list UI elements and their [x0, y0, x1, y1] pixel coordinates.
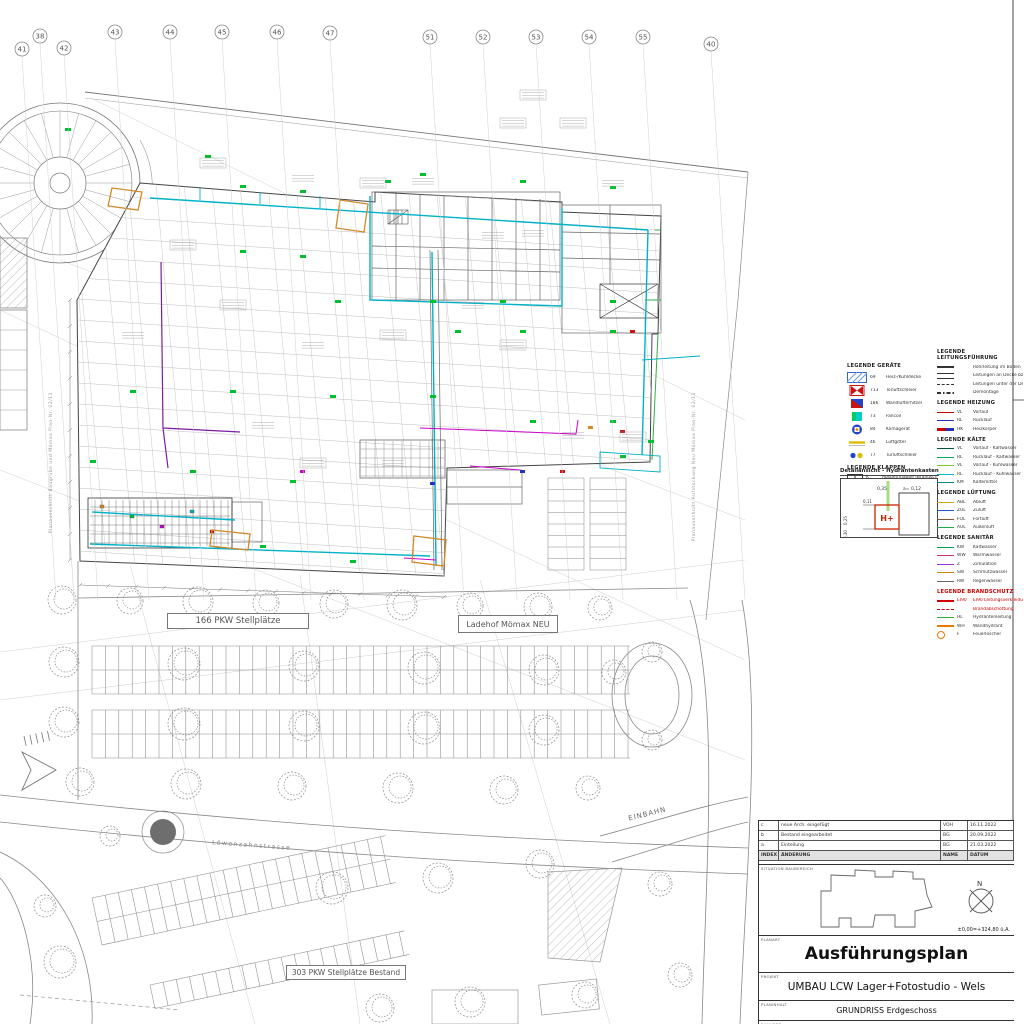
- legend-item-label: Feuerlöscher: [973, 632, 1001, 637]
- legend-item: 46Luftgitter: [847, 436, 937, 449]
- legend-item-label: Leitungen an Decke bzw. frei verlegt: [973, 373, 1023, 378]
- line-swatch-icon: [937, 420, 954, 421]
- legend-item-label: Rücklauf - Kühlwasser: [973, 472, 1021, 477]
- line-swatch-icon: [937, 609, 954, 610]
- grid-bubble: 54: [582, 30, 596, 44]
- legend-item-label: Luftgitter: [886, 440, 906, 445]
- svg-text:40: 40: [707, 40, 716, 48]
- legend-item-code: FOL: [957, 517, 973, 522]
- legend-item-label: Torluftschleier: [886, 388, 917, 393]
- line-swatch-icon: [937, 617, 954, 618]
- plan-content: GRUNDRISS Erdgeschoss: [759, 1001, 1014, 1020]
- legend-item-label: Türluftschleier: [886, 453, 917, 458]
- legend-item-code: 73: [870, 414, 886, 419]
- plan-sheet: 4138424344454647515253545540 166 PKW Ste…: [0, 0, 1024, 1024]
- line-swatch-icon: [937, 366, 954, 368]
- legend-item-code: ABL: [957, 500, 973, 505]
- legend-item: ZULZuluft: [937, 507, 1023, 516]
- line-swatch-icon: [937, 502, 954, 503]
- label-planausschnitt-left: Planausschnitt Baugrube und Mömax Plan-N…: [49, 392, 54, 533]
- legend-item: 77Türluftschleier: [847, 449, 937, 462]
- elevation-note: ±0,00=+324,80 ü.A.: [958, 927, 1010, 933]
- svg-text:46: 46: [273, 28, 282, 36]
- grid-bubble: 55: [636, 30, 650, 44]
- line-swatch-icon: [937, 465, 954, 466]
- north-arrow-icon: N: [969, 880, 993, 913]
- svg-text:54: 54: [585, 33, 594, 41]
- legend-item-label: Leitungen unter der Decke: [973, 382, 1023, 387]
- direction-arrow-icon: [22, 752, 56, 790]
- revision-table: cneue Arch. eingefügtVOH16.11.2022bBesta…: [759, 821, 1014, 861]
- legend-item: Brandabschottung: [937, 605, 1023, 614]
- hydrant-detail-box: H+ 0,35 a= 0,12 0,11 0,25 0,30: [840, 478, 938, 538]
- legend-title: LEGENDE GERÄTE: [847, 363, 937, 369]
- project-title: UMBAU LCW Lager+Fotostudio - Wels: [759, 973, 1014, 1000]
- legend-item-code: HL: [957, 615, 973, 620]
- legend-title: LEGENDE LEITUNGSFÜHRUNG: [937, 349, 1023, 361]
- legend-item: RLRücklauf - Kaltwasser: [937, 453, 1023, 462]
- legend-item-label: Klimagerät: [886, 427, 910, 432]
- revision-cell: VOH: [941, 821, 968, 831]
- line-swatch-icon: [937, 564, 954, 565]
- revision-cell: c: [759, 821, 779, 831]
- legend-item-code: EI90: [957, 598, 973, 603]
- legend-item-code: SW: [957, 570, 973, 575]
- projekt-section: PROJEKT UMBAU LCW Lager+Fotostudio - Wel…: [759, 973, 1014, 1001]
- svg-text:42: 42: [60, 44, 69, 52]
- line-swatch-icon: [937, 373, 954, 379]
- legend-title: LEGENDE LÜFTUNG: [937, 490, 1023, 496]
- dash-yellow-icon: [847, 437, 867, 448]
- svg-text:45: 45: [218, 28, 227, 36]
- planinhalt-field-label: PLANINHALT: [761, 1002, 787, 1007]
- revision-cell: b: [759, 831, 779, 841]
- svg-text:0,11: 0,11: [863, 499, 872, 504]
- svg-text:0,35: 0,35: [877, 486, 887, 492]
- legend-item: SWSchmutzwasser: [937, 569, 1023, 578]
- legend-item: 713Torluftschleier: [847, 384, 937, 397]
- grid-bubble: 44: [163, 25, 177, 39]
- svg-text:53: 53: [532, 33, 541, 41]
- legend-item-code: KW: [957, 545, 973, 550]
- grid-bubble: 51: [423, 30, 437, 44]
- legend-item: FFeuerlöscher: [937, 631, 1023, 640]
- dots-icon: [847, 450, 867, 461]
- legend-item: Leitungen unter der Decke: [937, 380, 1023, 389]
- legend-item-label: Rücklauf - Kaltwasser: [973, 455, 1020, 460]
- revision-cell: 20.09.2022: [968, 831, 1014, 841]
- line-swatch-icon: [937, 392, 954, 394]
- legend-item: WHWandhydrant: [937, 622, 1023, 631]
- svg-text:a= 0,12: a= 0,12: [903, 486, 921, 492]
- legend-item-label: Warmwasser: [973, 553, 1001, 558]
- line-swatch-icon: [937, 457, 954, 458]
- legend-item-label: Kaltwasser: [973, 545, 997, 550]
- legend-item-label: Abluft: [973, 500, 986, 505]
- legend-item: AULAußenluft: [937, 524, 1023, 533]
- legend-item: 69Heiz-/Kühldecke: [847, 371, 937, 384]
- legend-item-label: Wandhydrant: [973, 624, 1003, 629]
- legend-item: Leitungen an Decke bzw. frei verlegt: [937, 372, 1023, 381]
- grid-bubble: 38: [33, 29, 47, 43]
- line-swatch-icon: [937, 527, 954, 528]
- line-swatch-icon: [937, 474, 954, 475]
- revision-cell: neue Arch. eingefügt: [779, 821, 941, 831]
- bowtie-red-icon: [847, 385, 867, 396]
- legend-item: 186Wandlufterhitzer: [847, 397, 937, 410]
- line-swatch-icon: [937, 510, 954, 511]
- legend-item-label: Heizkörper: [973, 427, 997, 432]
- legend-item-code: 77: [870, 453, 886, 458]
- legend-item-label: Schmutzwasser: [973, 570, 1007, 575]
- legend-item-code: 84: [870, 427, 886, 432]
- legend-item-label: Vorlauf: [973, 410, 988, 415]
- keyplan-section: SITUATION BAUBEREICH N ±0,00=+324,80 ü.A…: [759, 865, 1014, 936]
- revision-cell: a: [759, 841, 779, 851]
- grid-bubble: 53: [529, 30, 543, 44]
- svg-text:51: 51: [426, 33, 435, 41]
- legend-item-label: Brandabschottung: [973, 607, 1014, 612]
- legend-item-label: Fancoil: [886, 414, 901, 419]
- keyplan-label: SITUATION BAUBEREICH: [761, 866, 813, 871]
- svg-text:N: N: [977, 880, 982, 888]
- legend-item-label: Regenwasser: [973, 579, 1002, 584]
- label-ladehof: Ladehof Mömax NEU: [458, 615, 558, 633]
- legend-item: ABLAbluft: [937, 498, 1023, 507]
- legend-item-label: Außenluft: [973, 525, 994, 530]
- plan-title: Ausführungsplan: [759, 936, 1014, 972]
- projekt-field-label: PROJEKT: [761, 974, 779, 979]
- keyplan-building-outline: [821, 870, 932, 927]
- legend-item-label: Wandlufterhitzer: [886, 401, 922, 406]
- revision-header-cell: DATUM: [968, 851, 1014, 861]
- hatch-blue-icon: [847, 372, 867, 383]
- grid-bubble: 46: [270, 25, 284, 39]
- grid-bubble: 52: [476, 30, 490, 44]
- legend-item-code: HK: [957, 427, 973, 432]
- revision-cell: BG: [941, 841, 968, 851]
- revision-cell: Bestand eingearbeitet: [779, 831, 941, 841]
- legend-item: ZZirkulation: [937, 560, 1023, 569]
- title-block: cneue Arch. eingefügtVOH16.11.2022bBesta…: [758, 820, 1014, 1024]
- legend-item-label: Rohrleitung im Boden: [973, 365, 1021, 370]
- grid-bubble: 42: [57, 41, 71, 55]
- legend-item: 84Klimagerät: [847, 423, 937, 436]
- line-swatch-icon: [937, 448, 954, 449]
- legend-item-code: WW: [957, 553, 973, 558]
- legend-item: VLVorlauf - Kühlwasser: [937, 462, 1023, 471]
- hydrant-symbol: H+: [880, 514, 893, 523]
- svg-text:43: 43: [111, 28, 120, 36]
- legend-item-code: RL: [957, 418, 973, 423]
- grid-bubble: 45: [215, 25, 229, 39]
- line-swatch-icon: [937, 412, 954, 413]
- revision-header-cell: NAME: [941, 851, 968, 861]
- legend-item-label: Kältemittel: [973, 480, 997, 485]
- roads: [0, 561, 752, 1024]
- label-planausschnitt-right: Planausschnitt Aufstockung Neu Mömax Pla…: [692, 392, 697, 541]
- legend-item-code: VL: [957, 446, 973, 451]
- svg-text:44: 44: [166, 28, 175, 36]
- legend-item: EI90EI90 Leitungsverkleidung: [937, 597, 1023, 606]
- svg-text:55: 55: [639, 33, 648, 41]
- legend-item-code: VL: [957, 410, 973, 415]
- label-stellplaetze-neu: 166 PKW Stellplätze: [167, 613, 309, 629]
- legend-item-code: WH: [957, 624, 973, 629]
- line-swatch-icon: [937, 482, 954, 483]
- legend-item: HLHydrantenleitung: [937, 614, 1023, 623]
- legend-item-code: KM: [957, 480, 973, 485]
- building-outline: [77, 183, 661, 576]
- planart-section: PLANART Ausführungsplan: [759, 936, 1014, 973]
- legend-title: LEGENDE SANITÄR: [937, 535, 1023, 541]
- legend-item-code: 69: [870, 375, 886, 380]
- legend-item-code: 713: [870, 388, 886, 393]
- legend-item-label: Vorlauf - Kaltwasser: [973, 446, 1017, 451]
- legend-item-label: EI90 Leitungsverkleidung: [973, 598, 1023, 603]
- legend-item-label: Hydrantenleitung: [973, 615, 1011, 620]
- svg-text:38: 38: [36, 32, 45, 40]
- line-swatch-icon: [937, 384, 954, 385]
- legend-item: KWKaltwasser: [937, 543, 1023, 552]
- flag-blue-icon: [847, 398, 867, 409]
- line-swatch-icon: [937, 428, 954, 431]
- legend-item: HKHeizkörper: [937, 425, 1023, 434]
- planinhalt-section: PLANINHALT GRUNDRISS Erdgeschoss: [759, 1001, 1014, 1021]
- legend-item-label: Fortluft: [973, 517, 989, 522]
- legend-item-label: Zirkulation: [973, 562, 997, 567]
- grid-bubble: 43: [108, 25, 122, 39]
- line-swatch-icon: [937, 547, 954, 548]
- svg-text:52: 52: [479, 33, 488, 41]
- legend-item: RWRegenwasser: [937, 577, 1023, 586]
- revision-header-cell: ÄNDERUNG: [779, 851, 941, 861]
- legend-systems-panel: LEGENDE LEITUNGSFÜHRUNGRohrleitung im Bo…: [937, 346, 1023, 639]
- legend-item: KMKältemittel: [937, 479, 1023, 488]
- svg-text:0,25: 0,25: [843, 516, 848, 525]
- legend-item: Rohrleitung im Boden: [937, 363, 1023, 372]
- legend-item-label: Demontage: [973, 390, 999, 395]
- revision-cell: Einteilung: [779, 841, 941, 851]
- svg-text:0,30: 0,30: [843, 530, 848, 537]
- legend-title: LEGENDE HEIZUNG: [937, 400, 1023, 406]
- legend-title: LEGENDE BRANDSCHUTZ: [937, 589, 1023, 595]
- legend-item-code: Z: [957, 562, 973, 567]
- line-swatch-icon: [937, 625, 954, 627]
- legend-item-label: Zuluft: [973, 508, 986, 513]
- legend-title: LEGENDE KÄLTE: [937, 437, 1023, 443]
- svg-text:47: 47: [326, 29, 335, 37]
- grid-bubble: 47: [323, 26, 337, 40]
- line-swatch-icon: [937, 600, 954, 602]
- legend-item-code: RW: [957, 579, 973, 584]
- legend-item-code: 46: [870, 440, 886, 445]
- legend-item-label: Rücklauf: [973, 418, 992, 423]
- circ-blue-icon: [847, 424, 867, 435]
- sq-cyan-icon: [847, 411, 867, 422]
- legend-item: VLVorlauf: [937, 408, 1023, 417]
- line-swatch-icon: [937, 519, 954, 520]
- planart-field-label: PLANART: [761, 937, 780, 942]
- legend-item-code: RL: [957, 455, 973, 460]
- legend-item-code: F: [957, 632, 973, 637]
- legend-item-code: RL: [957, 472, 973, 477]
- line-swatch-icon: [937, 631, 945, 639]
- legend-item-code: AUL: [957, 525, 973, 530]
- legend-item: WWWarmwasser: [937, 552, 1023, 561]
- grid-bubble: 41: [15, 42, 29, 56]
- label-stellplaetze-bestand: 303 PKW Stellplätze Bestand: [286, 965, 406, 980]
- detail-box-title: Detailansicht - Hydrantenkasten: [840, 468, 939, 476]
- revision-cell: 21.03.2022: [968, 841, 1014, 851]
- line-swatch-icon: [937, 555, 954, 556]
- legend-item: RLRücklauf - Kühlwasser: [937, 470, 1023, 479]
- legend-item-code: VL: [957, 463, 973, 468]
- grid-bubble: 40: [704, 37, 718, 51]
- legend-item: Demontage: [937, 389, 1023, 398]
- revision-cell: 16.11.2022: [968, 821, 1014, 831]
- legend-item: 73Fancoil: [847, 410, 937, 423]
- svg-text:41: 41: [18, 45, 27, 53]
- legend-item: RLRücklauf: [937, 417, 1023, 426]
- legend-item-label: Vorlauf - Kühlwasser: [973, 463, 1018, 468]
- legend-item: VLVorlauf - Kaltwasser: [937, 445, 1023, 454]
- line-swatch-icon: [937, 581, 954, 582]
- revision-header-cell: INDEX: [759, 851, 779, 861]
- line-swatch-icon: [937, 572, 954, 573]
- legend-item: FOLFortluft: [937, 515, 1023, 524]
- legend-item-code: ZUL: [957, 508, 973, 513]
- legend-item-label: Heiz-/Kühldecke: [886, 375, 921, 380]
- legend-item-code: 186: [870, 401, 886, 406]
- revision-cell: BG: [941, 831, 968, 841]
